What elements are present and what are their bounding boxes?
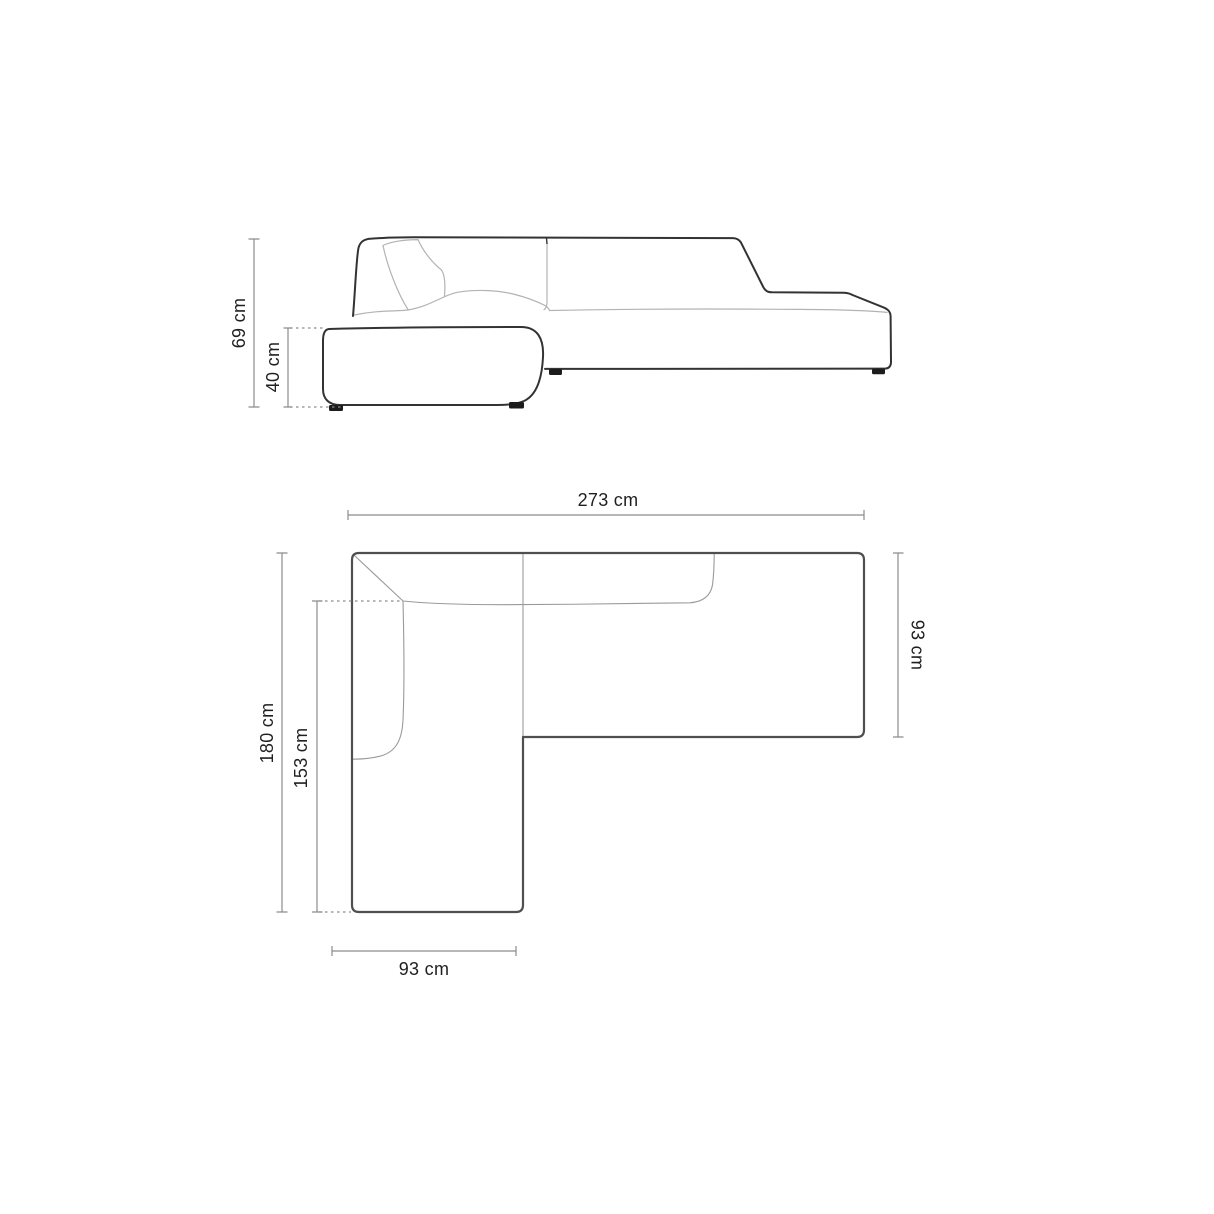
back-cushion-right-line [383, 240, 445, 296]
label-total-depth: 180 cm [257, 703, 277, 764]
chaise-right-foot [509, 402, 524, 409]
plan-outline [352, 553, 864, 912]
diagram-canvas: 69 cm 40 cm [0, 0, 1214, 1214]
chaise-left-foot [329, 405, 343, 411]
side-view: 69 cm 40 cm [229, 237, 891, 411]
side-view-detail-lines [354, 240, 887, 315]
seat-curve-line [354, 290, 545, 315]
plan-corner-diagonal [355, 556, 403, 601]
back-cushion-left-line [383, 246, 408, 310]
module-seam-line [544, 243, 547, 310]
plan-dimensions [277, 510, 904, 956]
plan-backrest-curve [403, 555, 714, 605]
plan-chaise-seam [353, 601, 404, 759]
top-edge-seam-tick [547, 238, 548, 244]
main-seat-edge-line [550, 309, 888, 312]
plan-detail-lines [353, 555, 714, 760]
sofa-body-outline [353, 237, 891, 369]
label-right-depth: 93 cm [907, 620, 927, 671]
main-right-foot [872, 369, 885, 375]
sofa-dimension-diagram: 69 cm 40 cm [0, 0, 1214, 1214]
label-total-height: 69 cm [229, 298, 249, 349]
label-total-width: 273 cm [578, 490, 639, 510]
label-chaise-width: 93 cm [399, 959, 450, 979]
label-seat-height: 40 cm [263, 342, 283, 393]
label-chaise-inner-depth: 153 cm [291, 728, 311, 789]
main-left-foot [549, 369, 562, 375]
chaise-module-outline [323, 327, 543, 405]
plan-view: 273 cm 93 cm 180 cm 153 cm 93 cm [257, 490, 928, 979]
